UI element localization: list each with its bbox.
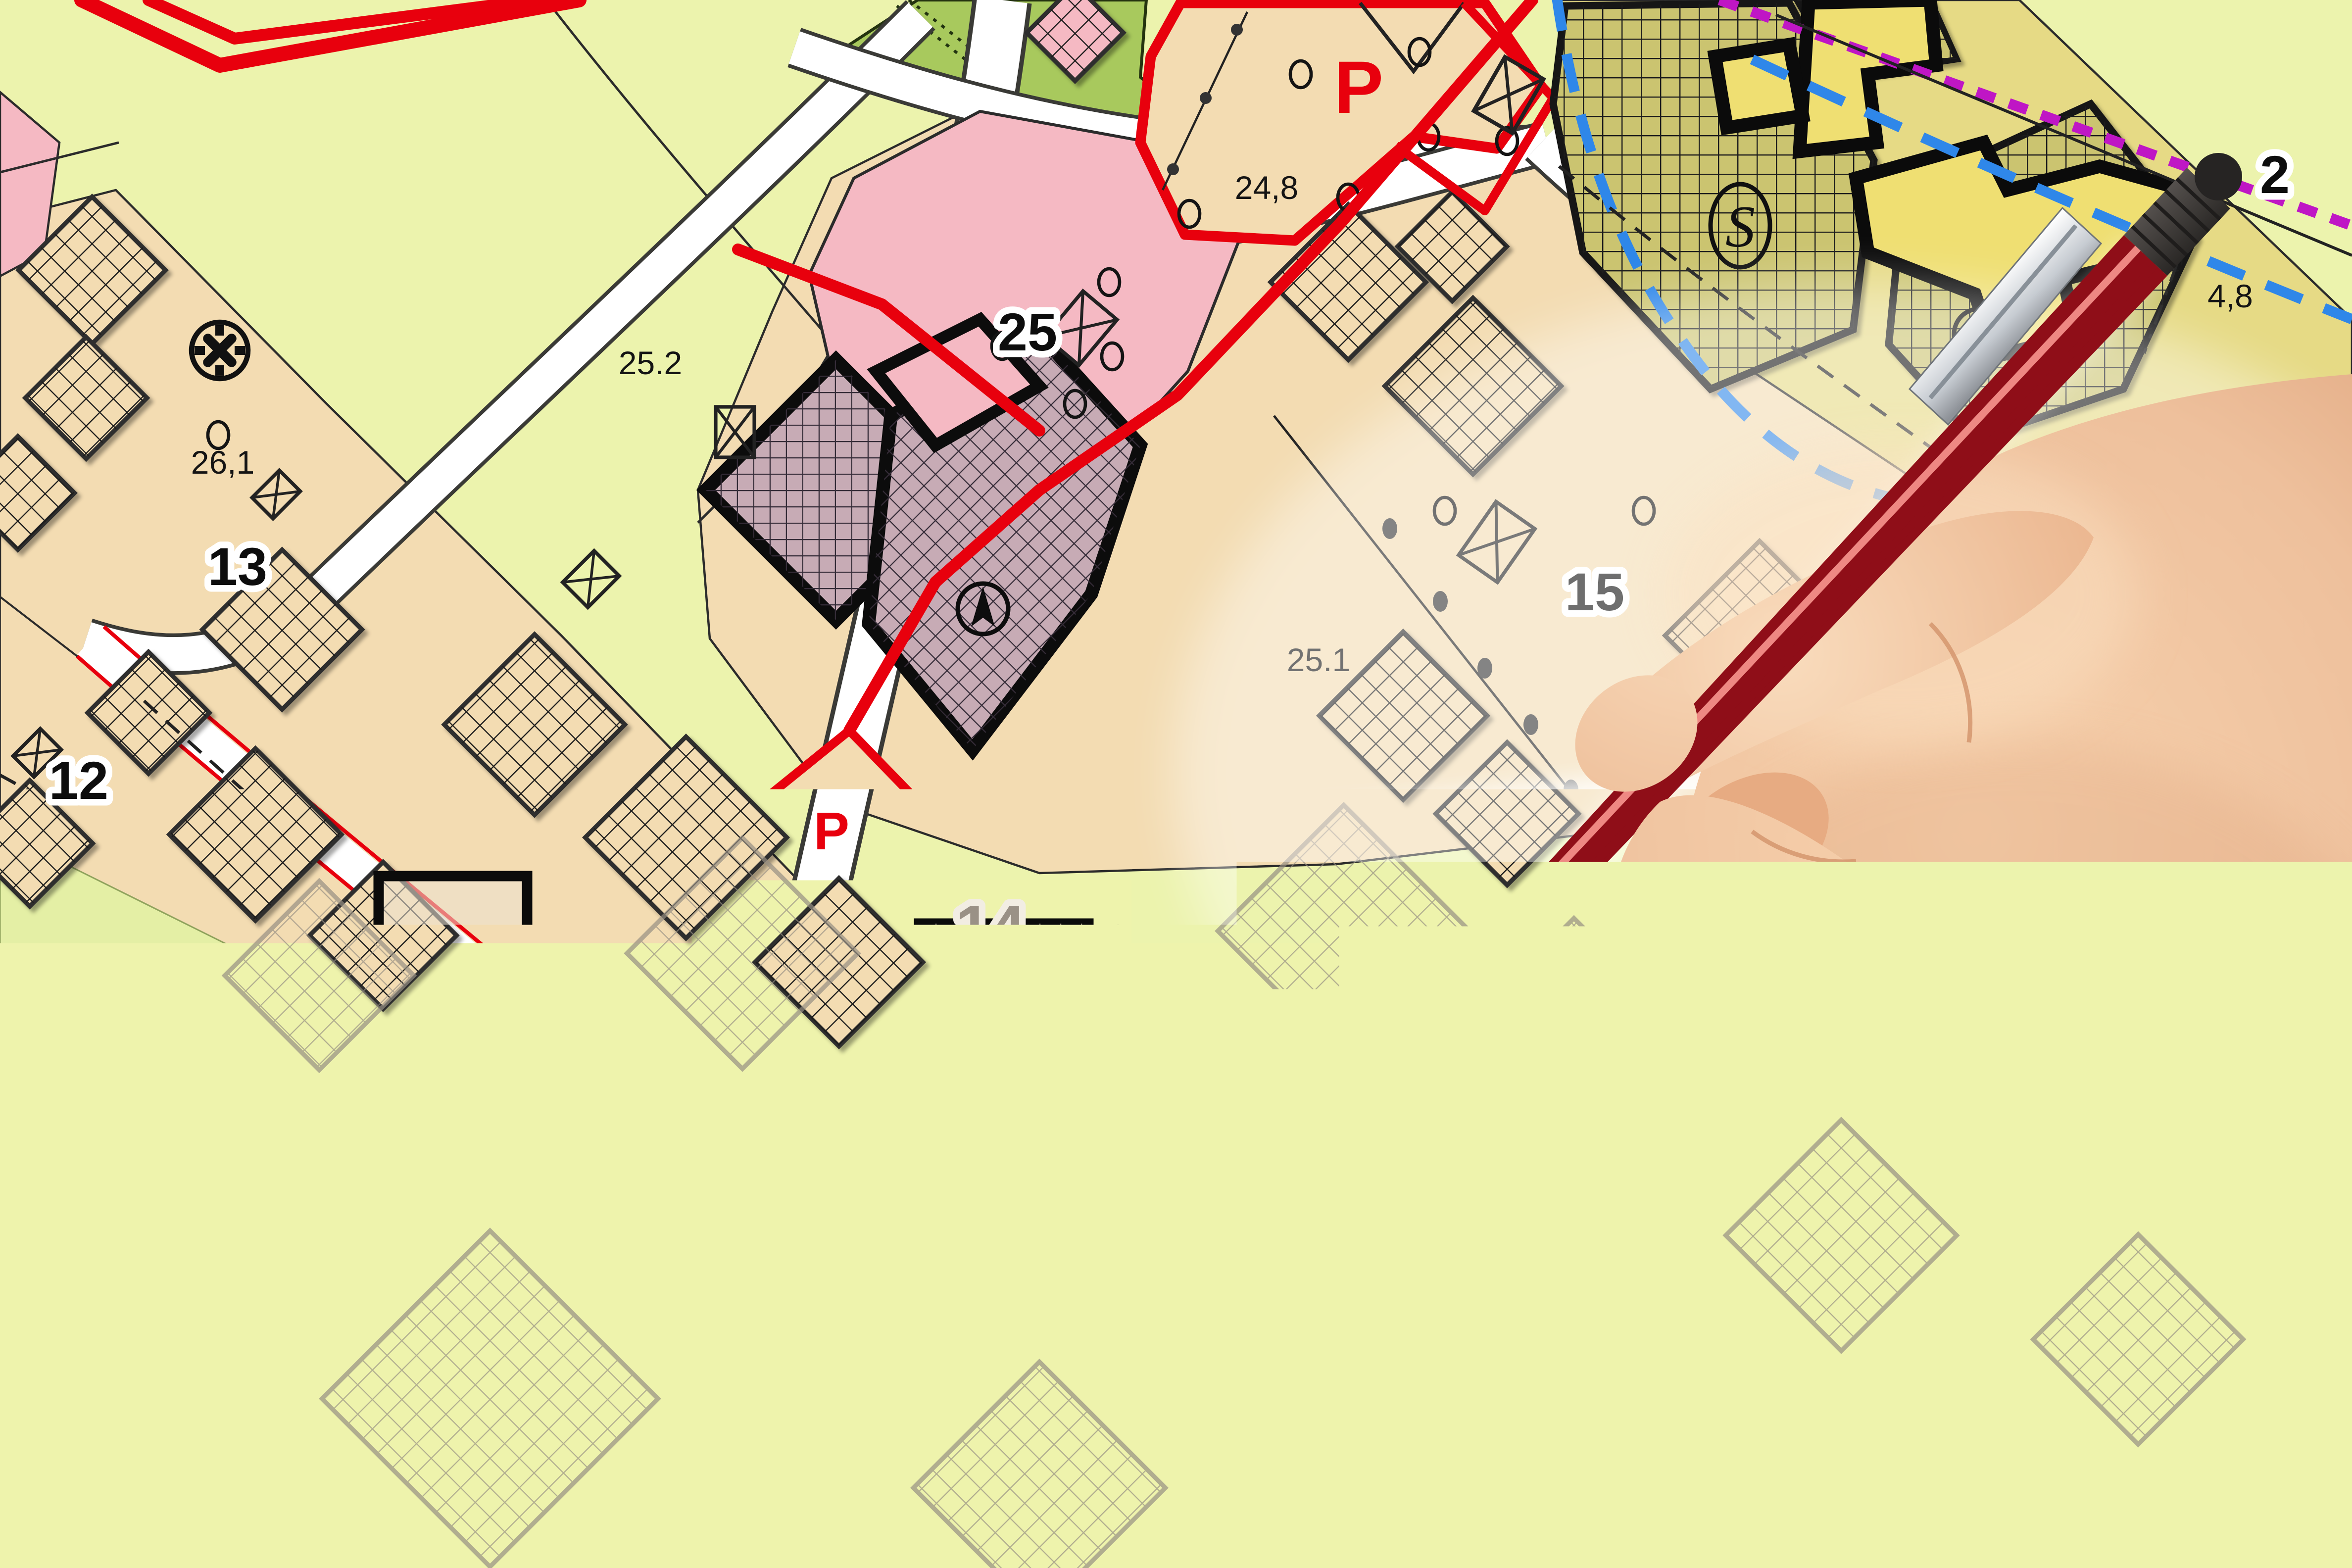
ladder-tower-1 bbox=[208, 1025, 344, 1500]
label-16: 16 bbox=[1259, 1206, 1328, 1275]
label-24-1: 24.1 bbox=[1193, 1483, 1263, 1522]
label-13: 13 bbox=[208, 537, 267, 596]
label-26-1: 26,1 bbox=[191, 444, 254, 481]
tower-14 bbox=[919, 924, 1088, 1396]
survey-marker-icon bbox=[192, 322, 248, 379]
label-25-5: 25,5 bbox=[118, 931, 182, 968]
map-canvas: 25.2 26,1 13 12 25,5 25 P 24,8 P S 15 25… bbox=[0, 0, 2352, 1568]
label-parking-small: P bbox=[814, 801, 849, 861]
label-parking-large: P bbox=[1334, 46, 1383, 129]
label-12: 12 bbox=[49, 750, 108, 810]
label-25-2: 25.2 bbox=[619, 344, 682, 381]
label-14: 14 bbox=[956, 892, 1025, 962]
label-s: S bbox=[1725, 194, 1755, 259]
label-24-8: 24,8 bbox=[1235, 169, 1298, 206]
screenshot-root: 25.2 26,1 13 12 25,5 25 P 24,8 P S 15 25… bbox=[0, 0, 2352, 1568]
label-25-3: 25.3 bbox=[757, 1060, 826, 1099]
ladder-tower-2 bbox=[379, 876, 527, 1388]
label-2: 2 bbox=[2260, 145, 2290, 204]
label-4-8: 4,8 bbox=[2207, 278, 2253, 314]
label-25: 25 bbox=[998, 302, 1057, 362]
